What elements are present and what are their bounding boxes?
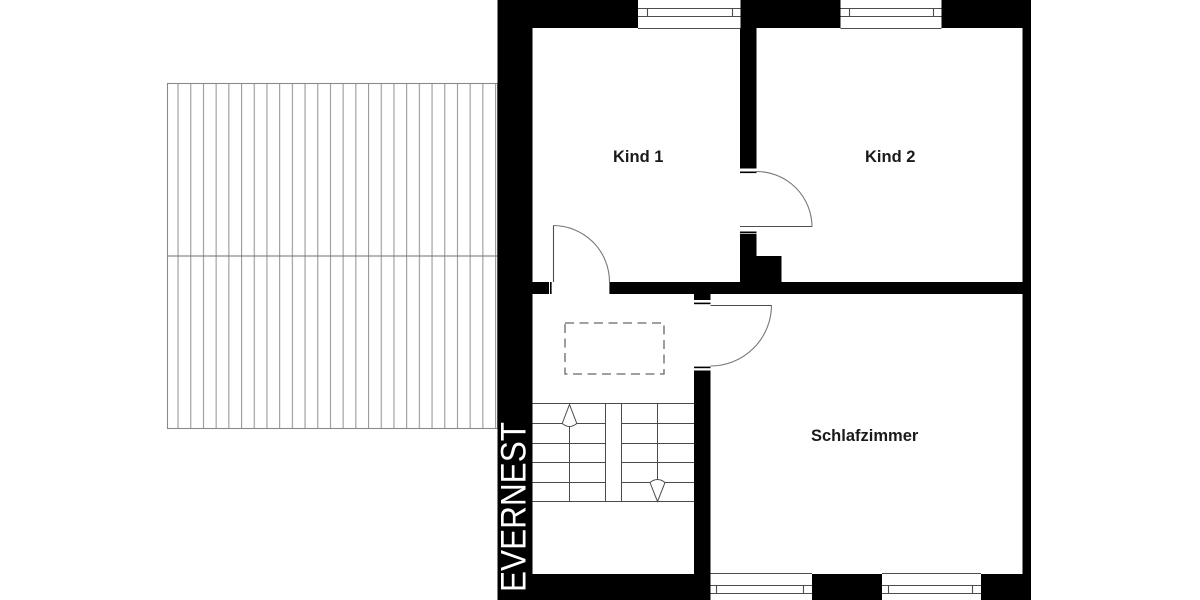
svg-text:EVERNEST: EVERNEST bbox=[495, 422, 534, 592]
svg-text:Kind 2: Kind 2 bbox=[865, 148, 915, 166]
svg-text:Kind 1: Kind 1 bbox=[613, 148, 663, 166]
svg-text:Schlafzimmer: Schlafzimmer bbox=[811, 427, 919, 445]
